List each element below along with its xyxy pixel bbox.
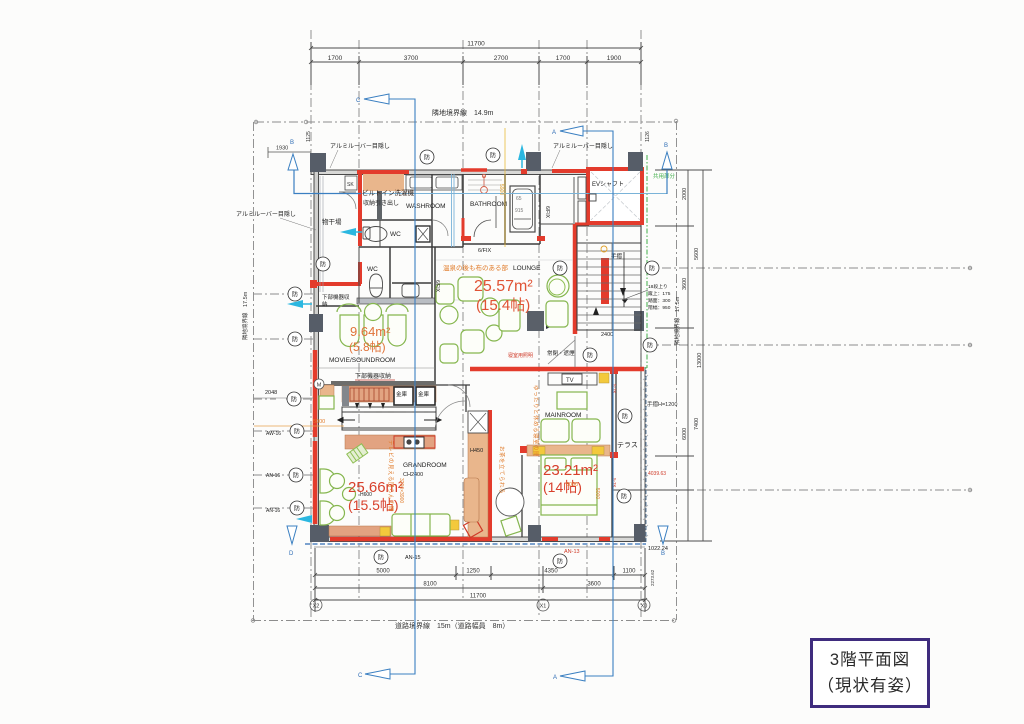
svg-text:915: 915 [515, 208, 524, 214]
svg-text:65: 65 [516, 196, 522, 202]
svg-text:C: C [356, 98, 361, 104]
svg-text:アルミルーバー目隠し: アルミルーバー目隠し [236, 210, 296, 218]
svg-text:5900: 5900 [498, 184, 504, 195]
svg-text:TV: TV [566, 378, 574, 384]
svg-text:温泉の後も布のある部: 温泉の後も布のある部 [443, 263, 509, 272]
svg-text:お茶を立てられる: お茶を立てられる [498, 446, 506, 494]
svg-text:手摺H=1200: 手摺H=1200 [647, 400, 677, 408]
svg-text:25.66m²: 25.66m² [348, 479, 403, 496]
svg-text:B: B [664, 143, 668, 149]
svg-text:防: 防 [292, 336, 298, 344]
svg-text:1700: 1700 [328, 55, 343, 62]
svg-text:テレビの見える団らんの間: テレビの見える団らんの間 [387, 440, 395, 512]
svg-text:MAINROOM: MAINROOM [545, 412, 581, 419]
svg-text:収納引き出し: 収納引き出し [363, 199, 399, 207]
svg-text:2000: 2000 [682, 188, 688, 200]
svg-text:1126: 1126 [645, 131, 651, 142]
svg-text:金庫: 金庫 [396, 390, 408, 398]
svg-text:防: 防 [378, 554, 384, 562]
svg-text:道路境界線 15m（道路幅員 8m）: 道路境界線 15m（道路幅員 8m） [395, 621, 509, 630]
svg-text:B: B [290, 140, 294, 146]
svg-text:6/FIX: 6/FIX [434, 280, 440, 293]
svg-text:3600: 3600 [682, 278, 688, 290]
svg-text:防: 防 [294, 428, 300, 436]
svg-text:金庫: 金庫 [418, 390, 430, 398]
svg-text:1700: 1700 [556, 55, 571, 62]
svg-text:2700: 2700 [494, 55, 509, 62]
svg-text:A: A [552, 130, 556, 136]
svg-text:H450: H450 [470, 448, 483, 454]
svg-text:LOUNGE: LOUNGE [513, 265, 541, 272]
svg-text:(5.8帖): (5.8帖) [349, 339, 386, 354]
svg-text:5000: 5000 [313, 419, 325, 425]
svg-text:B: B [661, 551, 665, 557]
svg-text:隣地境界線 17.5m: 隣地境界線 17.5m [673, 296, 681, 345]
svg-text:EVシャフト: EVシャフト [592, 181, 624, 188]
svg-text:2400: 2400 [601, 332, 613, 338]
svg-text:3600: 3600 [587, 582, 601, 588]
svg-text:蹴上：175: 蹴上：175 [648, 290, 671, 297]
svg-text:GRANDROOM: GRANDROOM [403, 462, 447, 469]
svg-text:1250: 1250 [466, 569, 480, 575]
svg-text:防: 防 [291, 396, 297, 404]
svg-text:25.57m²: 25.57m² [474, 278, 533, 295]
svg-text:4350: 4350 [544, 569, 558, 575]
svg-text:AW-16: AW-16 [266, 431, 281, 437]
svg-text:AN-16: AN-16 [266, 473, 280, 479]
svg-text:防: 防 [649, 265, 655, 273]
svg-text:D: D [289, 551, 294, 557]
svg-text:(15.4帖): (15.4帖) [476, 297, 530, 314]
svg-text:3700: 3700 [404, 55, 419, 62]
svg-text:3200×3900: 3200×3900 [398, 478, 404, 503]
svg-text:防: 防 [587, 352, 593, 360]
svg-text:寝室用照明: 寝室用照明 [508, 352, 533, 359]
svg-text:防: 防 [621, 493, 627, 501]
svg-text:防: 防 [424, 154, 430, 162]
svg-text:AN-15: AN-15 [405, 555, 421, 561]
svg-text:X2: X2 [313, 604, 320, 610]
svg-text:ゆったりと休める寝室の間: ゆったりと休める寝室の間 [532, 385, 540, 457]
svg-text:AN-16: AN-16 [266, 508, 280, 514]
svg-text:踏面：300: 踏面：300 [648, 297, 671, 304]
svg-text:WC: WC [390, 231, 401, 238]
svg-text:11700: 11700 [470, 594, 487, 600]
svg-text:常閉・遮煙: 常閉・遮煙 [547, 349, 575, 357]
svg-text:ビルトイン洗濯機: ビルトイン洗濯機 [362, 188, 415, 197]
svg-text:23.21m²: 23.21m² [543, 462, 598, 479]
svg-text:A: A [553, 675, 557, 681]
svg-text:CH2400: CH2400 [403, 472, 423, 478]
svg-text:WC: WC [367, 266, 378, 273]
svg-text:物干場: 物干場 [322, 217, 342, 226]
svg-text:納: 納 [322, 300, 328, 308]
svg-text:18段上り: 18段上り [648, 283, 668, 290]
svg-text:防: 防 [557, 265, 563, 273]
svg-text:防: 防 [294, 505, 300, 513]
svg-text:6/FIX: 6/FIX [478, 248, 491, 254]
svg-text:防: 防 [622, 413, 628, 421]
svg-text:テラス: テラス [617, 441, 638, 449]
svg-text:6/FIX: 6/FIX [544, 206, 550, 219]
svg-text:6000: 6000 [682, 428, 688, 440]
svg-text:BATHROOM: BATHROOM [470, 201, 507, 208]
svg-text:1125: 1125 [306, 131, 312, 142]
svg-text:C: C [358, 673, 363, 679]
svg-text:5000: 5000 [566, 482, 578, 488]
svg-text:5600: 5600 [694, 248, 700, 260]
svg-text:AN-13: AN-13 [564, 549, 580, 555]
svg-text:隣地境界線 14.9m: 隣地境界線 14.9m [432, 108, 494, 117]
svg-text:13000: 13000 [697, 353, 703, 368]
svg-text:アルミルーバー目隠し: アルミルーバー目隠し [553, 142, 613, 150]
svg-text:MOVIE/SOUNDROOM: MOVIE/SOUNDROOM [329, 357, 395, 364]
svg-text:共用部分: 共用部分 [653, 172, 676, 180]
svg-text:アルミルーバー目隠し: アルミルーバー目隠し [330, 142, 390, 150]
svg-text:SK: SK [347, 182, 354, 188]
svg-text:X0: X0 [641, 604, 648, 610]
svg-text:防: 防 [647, 342, 653, 350]
svg-text:1100: 1100 [623, 569, 637, 575]
svg-text:階幅：950: 階幅：950 [648, 304, 671, 311]
svg-text:防: 防 [490, 152, 496, 160]
svg-text:1900: 1900 [607, 55, 622, 62]
svg-text:4039.63: 4039.63 [648, 471, 666, 477]
svg-text:下部機器収: 下部機器収 [322, 293, 350, 301]
svg-text:防: 防 [320, 261, 326, 269]
svg-text:2273.62: 2273.62 [650, 569, 655, 586]
svg-text:7400: 7400 [694, 418, 700, 430]
svg-text:下部機器収納: 下部機器収納 [355, 372, 391, 380]
svg-text:X1: X1 [540, 604, 547, 610]
svg-text:2048: 2048 [265, 390, 277, 396]
svg-text:防: 防 [292, 291, 298, 299]
svg-text:9.64m²: 9.64m² [350, 324, 391, 339]
svg-text:隣地境界線 17.5m: 隣地境界線 17.5m [241, 291, 249, 340]
svg-text:M: M [317, 383, 322, 389]
svg-text:WASHROOM: WASHROOM [406, 203, 445, 210]
svg-text:防: 防 [293, 472, 299, 480]
svg-text:5000: 5000 [594, 488, 600, 499]
svg-text:防: 防 [557, 558, 563, 566]
svg-text:11700: 11700 [467, 41, 485, 48]
svg-text:8100: 8100 [423, 582, 437, 588]
svg-text:1930: 1930 [276, 146, 288, 152]
svg-text:5000: 5000 [376, 569, 390, 575]
